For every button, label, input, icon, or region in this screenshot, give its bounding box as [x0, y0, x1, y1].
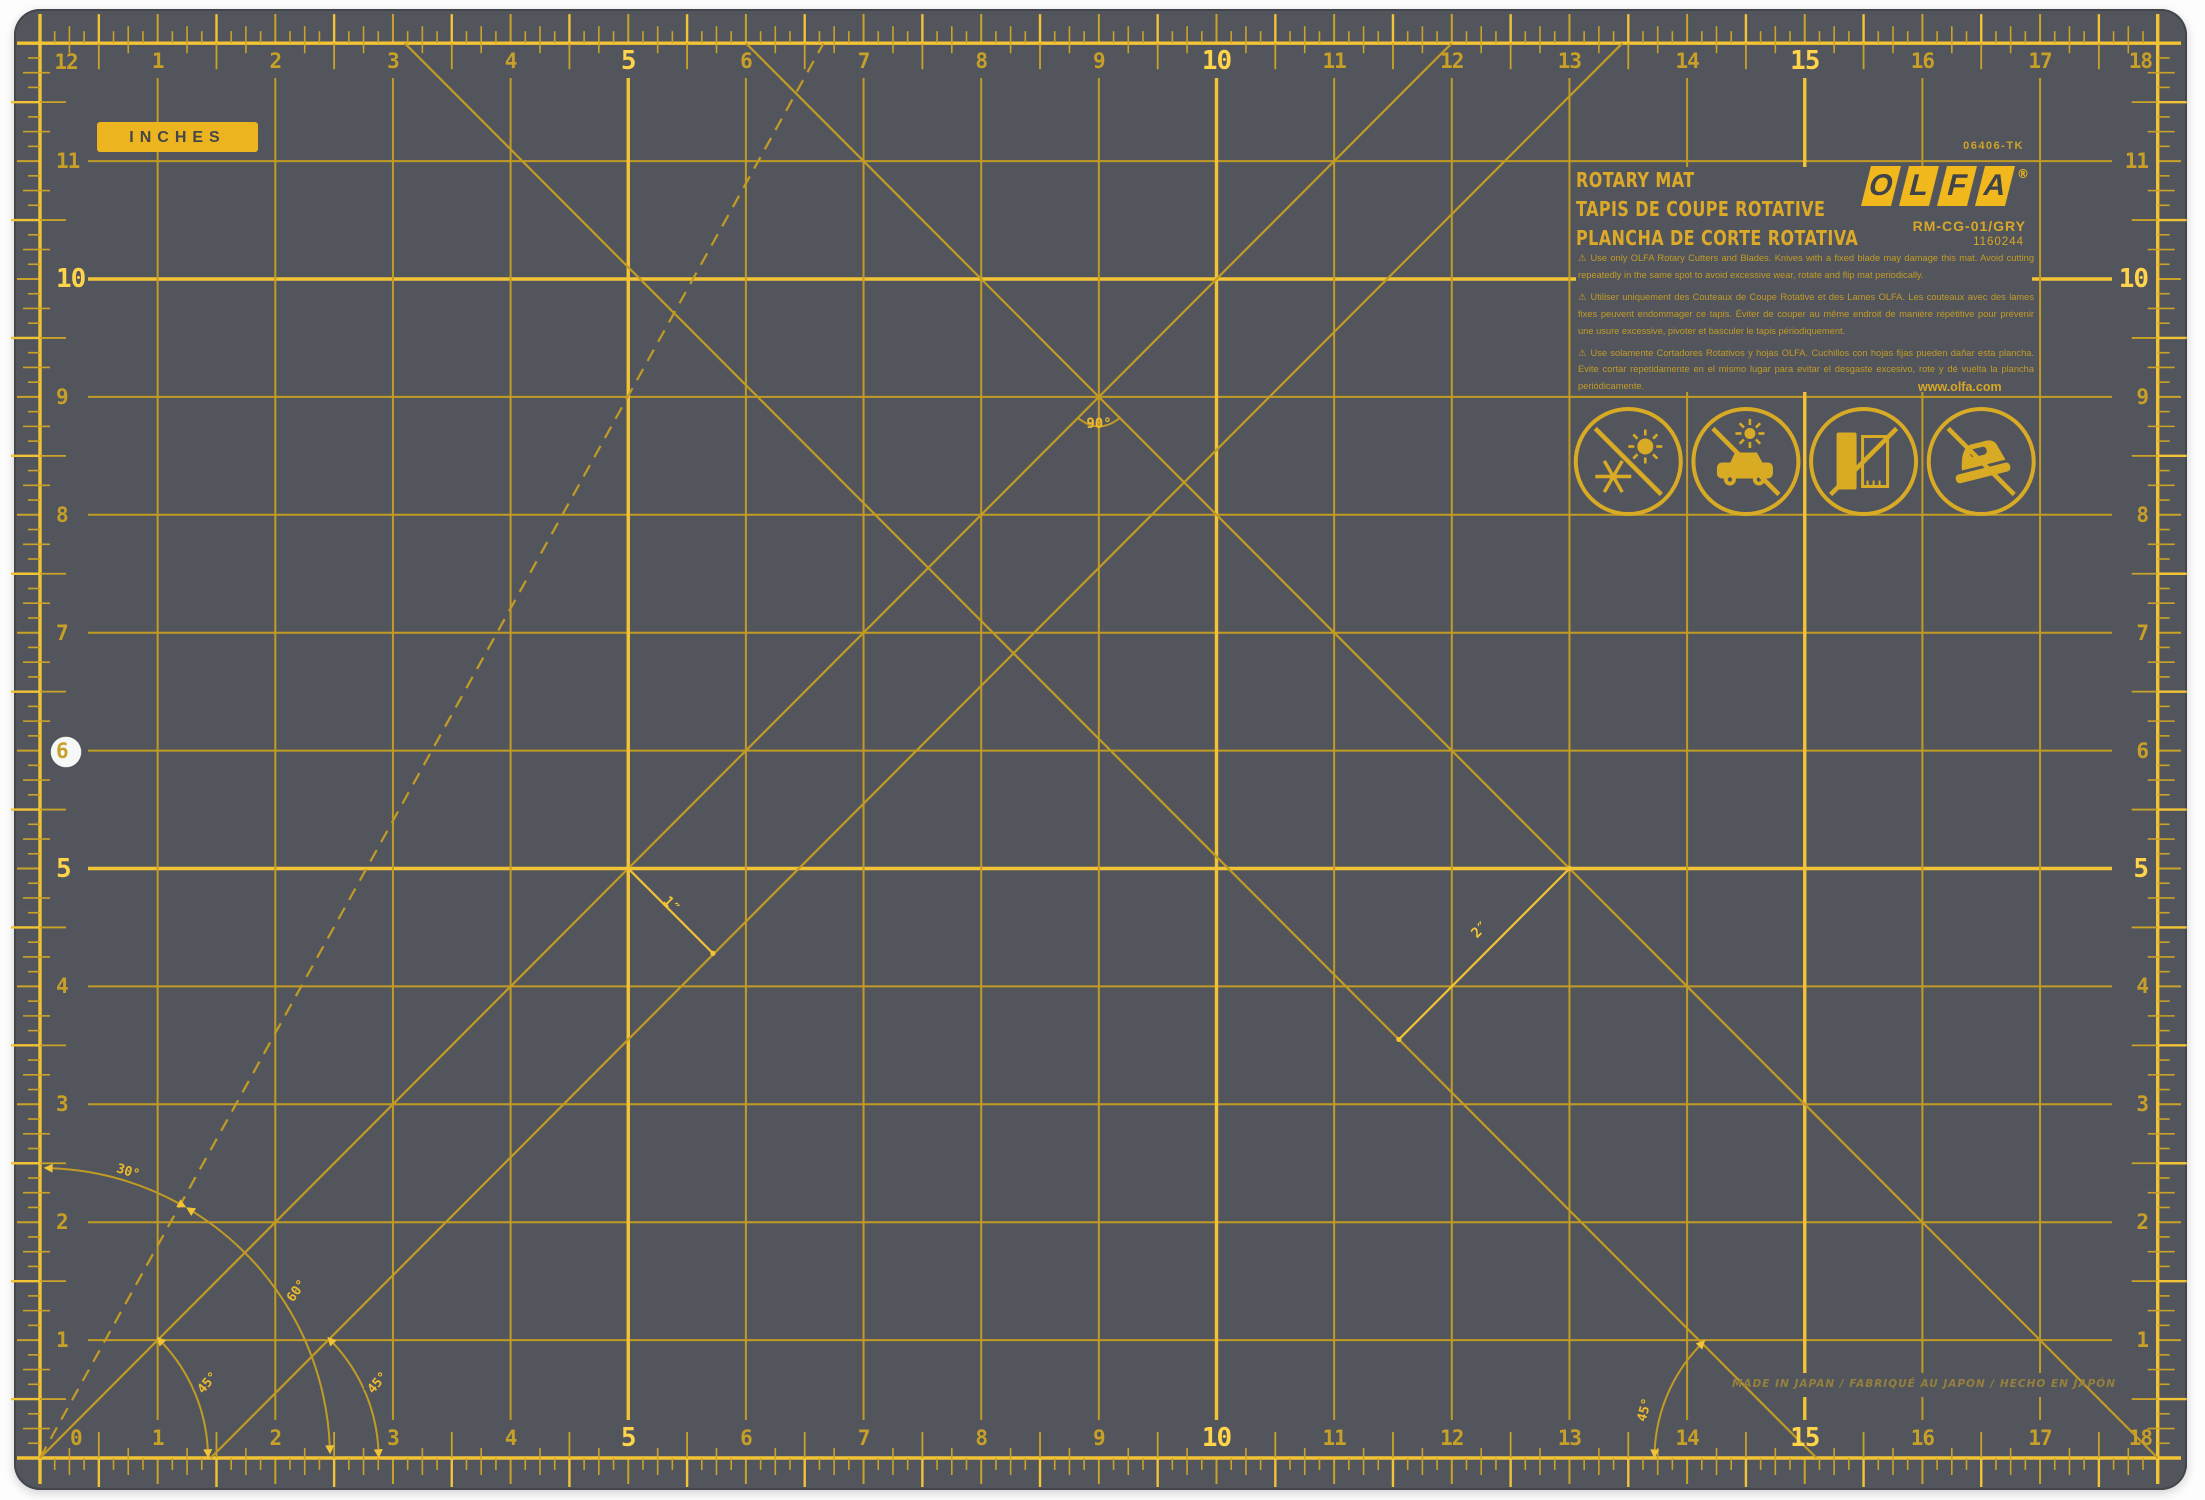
ruler-number: 8 [975, 49, 987, 73]
ruler-number: 7 [858, 49, 870, 73]
item-number: 1160244 [1973, 236, 2024, 248]
product-title-es: PLANCHA DE CORTE ROTATIVA [1576, 224, 1858, 253]
olfa-logo-letter-o: O [1861, 166, 1901, 206]
ruler-number: 11 [2125, 149, 2148, 173]
angle-label-90: 90° [1086, 416, 1111, 432]
ruler-number: 11 [1322, 1426, 1345, 1450]
inches-unit-badge: INCHES [97, 122, 258, 152]
ruler-number: 16 [1911, 1426, 1934, 1450]
mat-graphics [0, 0, 2205, 1500]
ruler-number: 11 [56, 149, 79, 173]
ruler-number: 14 [1675, 1426, 1698, 1450]
ruler-number: 12 [54, 50, 77, 74]
ruler-number: 0 [70, 1426, 82, 1450]
ruler-number: 13 [1558, 49, 1581, 73]
ruler-number: 15 [1790, 1423, 1819, 1453]
ruler-number: 6 [740, 49, 752, 73]
ruler-number: 8 [2136, 503, 2148, 527]
ruler-number: 2 [269, 1426, 281, 1450]
ruler-number: 6 [56, 739, 68, 763]
olfa-logo-letter-f: F [1937, 166, 1977, 206]
product-title-fr: TAPIS DE COUPE ROTATIVE [1576, 195, 1858, 224]
ruler-number: 18 [2129, 49, 2152, 73]
registered-trademark-symbol: ® [2017, 167, 2029, 181]
ruler-number: 2 [2136, 1210, 2148, 1234]
ruler-number: 5 [621, 1423, 636, 1453]
ruler-number: 8 [975, 1426, 987, 1450]
olfa-logo: O L F A [1866, 166, 2026, 208]
ruler-number: 10 [1202, 1423, 1231, 1453]
ruler-number: 9 [1093, 1426, 1105, 1450]
ruler-number: 7 [2136, 621, 2148, 645]
ruler-number: 11 [1322, 49, 1345, 73]
ruler-number: 18 [2129, 1426, 2152, 1450]
ruler-number: 5 [56, 854, 71, 884]
ruler-number: 3 [387, 49, 399, 73]
ruler-number: 12 [1440, 1426, 1463, 1450]
ruler-number: 5 [2133, 854, 2148, 884]
ruler-number: 4 [56, 974, 68, 998]
ruler-number: 14 [1675, 49, 1698, 73]
ruler-number: 3 [387, 1426, 399, 1450]
ruler-number: 13 [1558, 1426, 1581, 1450]
ruler-number: 1 [152, 49, 164, 73]
website-url: www.olfa.com [1918, 380, 2002, 394]
ruler-number: 9 [1093, 49, 1105, 73]
ruler-number: 1 [56, 1328, 68, 1352]
model-number: RM-CG-01/GRY [1913, 218, 2026, 234]
warning-english: ⚠ Use only OLFA Rotary Cutters and Blade… [1578, 250, 2034, 284]
cutting-mat-photo: INCHES 06406-TK ROTARY MAT TAPIS DE COUP… [0, 0, 2205, 1500]
product-title-en: ROTARY MAT [1576, 166, 1858, 195]
ruler-number: 10 [56, 264, 85, 294]
ruler-number: 1 [2136, 1328, 2148, 1352]
ruler-number: 10 [2119, 264, 2148, 294]
ruler-number: 7 [858, 1426, 870, 1450]
ruler-number: 3 [56, 1092, 68, 1116]
sku-number: 06406-TK [1963, 140, 2024, 152]
ruler-number: 2 [56, 1210, 68, 1234]
made-in-japan-text: MADE IN JAPAN / FABRIQUÉ AU JAPON / HECH… [1732, 1378, 2116, 1390]
ruler-number: 4 [2136, 974, 2148, 998]
ruler-number: 15 [1790, 46, 1819, 76]
ruler-number: 10 [1202, 46, 1231, 76]
product-title-block: ROTARY MAT TAPIS DE COUPE ROTATIVE PLANC… [1576, 166, 1858, 253]
ruler-number: 7 [56, 621, 68, 645]
ruler-number: 4 [505, 1426, 517, 1450]
ruler-number: 4 [505, 49, 517, 73]
warning-french: ⚠ Utiliser uniquement des Couteaux de Co… [1578, 289, 2034, 340]
ruler-number: 5 [621, 46, 636, 76]
ruler-number: 8 [56, 503, 68, 527]
ruler-number: 16 [1911, 49, 1934, 73]
ruler-number: 6 [740, 1426, 752, 1450]
ruler-number: 9 [56, 385, 68, 409]
ruler-number: 3 [2136, 1092, 2148, 1116]
olfa-logo-letter-a: A [1975, 166, 2015, 206]
ruler-number: 17 [2028, 49, 2051, 73]
ruler-number: 2 [269, 49, 281, 73]
ruler-number: 17 [2028, 1426, 2051, 1450]
ruler-number: 9 [2136, 385, 2148, 409]
ruler-number: 12 [1440, 49, 1463, 73]
warning-text-block: ⚠ Use only OLFA Rotary Cutters and Blade… [1578, 250, 2034, 400]
olfa-logo-letter-l: L [1899, 166, 1939, 206]
ruler-number: 6 [2136, 739, 2148, 763]
ruler-number: 1 [152, 1426, 164, 1450]
